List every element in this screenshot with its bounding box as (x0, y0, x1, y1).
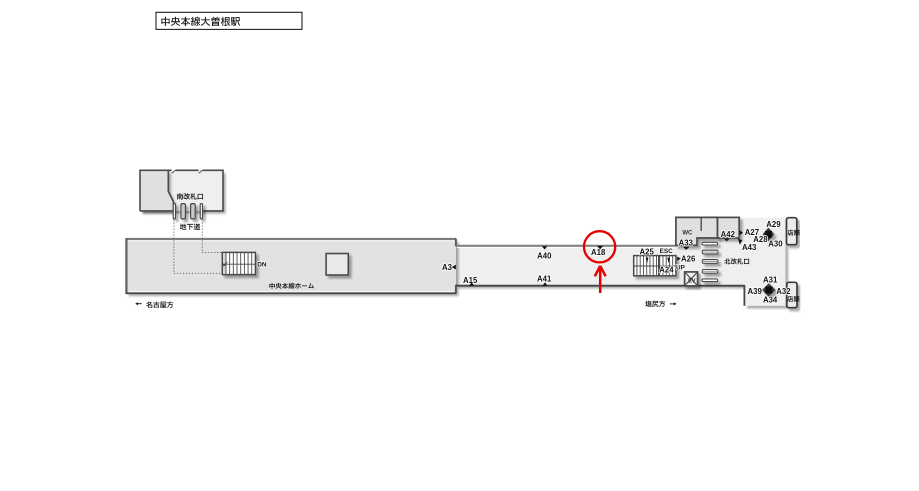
svg-text:A41: A41 (537, 275, 552, 284)
svg-text:A31: A31 (763, 276, 778, 285)
svg-text:A43: A43 (742, 243, 757, 252)
svg-text:A24: A24 (659, 265, 674, 274)
svg-text:A39: A39 (747, 287, 762, 296)
svg-text:UP: UP (676, 264, 686, 271)
svg-text:A28: A28 (753, 235, 768, 244)
svg-text:A30: A30 (768, 240, 783, 249)
svg-text:DN: DN (257, 261, 267, 268)
svg-text:A25: A25 (640, 247, 655, 256)
svg-text:WC: WC (682, 231, 693, 237)
svg-text:A26: A26 (681, 255, 696, 264)
svg-text:A32: A32 (776, 287, 791, 296)
svg-text:EV: EV (688, 279, 696, 285)
svg-text:A3: A3 (442, 263, 453, 272)
svg-text:A29: A29 (766, 220, 781, 229)
svg-text:A15: A15 (463, 276, 478, 285)
svg-text:A34: A34 (763, 296, 778, 305)
svg-text:ESC: ESC (660, 248, 674, 255)
svg-text:A33: A33 (679, 239, 694, 248)
svg-text:A42: A42 (721, 230, 736, 239)
svg-text:A18: A18 (591, 248, 606, 257)
svg-text:A40: A40 (537, 252, 552, 261)
